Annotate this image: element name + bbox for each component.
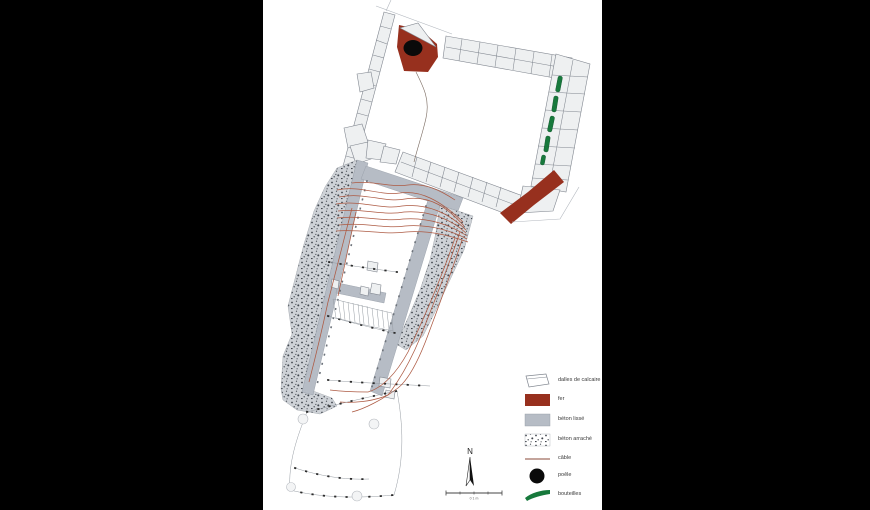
legend-item-label: poêle (558, 473, 571, 479)
survey-faint-line (386, 0, 391, 11)
legend-item-cable: câble (524, 455, 571, 463)
smoothed-concrete-swatch-icon (524, 413, 551, 427)
room-slabs (331, 261, 395, 399)
bottle-swatch-icon (524, 488, 551, 502)
trench-inner-dots (295, 468, 369, 479)
middle-concrete-structure (281, 160, 473, 414)
legend-item-label: dalles de calcaire (558, 378, 601, 384)
legend-item-beton-arrache: béton arraché (524, 433, 592, 447)
page: dalles de calcaire fer béton lissé (0, 0, 870, 510)
cable-upper (414, 72, 427, 162)
trench-stone (287, 483, 296, 492)
scale-bar: 0 1 m (445, 487, 503, 506)
scale-bar-icon: 0 1 m (445, 487, 503, 501)
legend-item-label: béton arraché (558, 437, 592, 443)
torn-concrete-swatch-icon (524, 433, 551, 447)
legend-item-bouteilles: bouteilles (524, 488, 581, 502)
legend-item-dalles-de-calcaire: dalles de calcaire (524, 372, 601, 389)
trench-stone (352, 491, 362, 501)
trench-inner-line (295, 468, 369, 479)
plan-panel: dalles de calcaire fer béton lissé (263, 0, 602, 510)
stove-swatch-icon (524, 467, 551, 485)
cable-swatch-icon (524, 455, 551, 463)
right-black-bar (602, 0, 870, 510)
stove-poele (404, 40, 423, 56)
trench-stone (298, 414, 308, 424)
collapse-fan (333, 299, 393, 331)
iron-swatch-icon (524, 393, 551, 407)
wall-left-limestone (342, 12, 400, 174)
trench-stone (369, 419, 379, 429)
legend-item-beton-lisse: béton lissé (524, 413, 584, 427)
legend: dalles de calcaire fer béton lissé (524, 0, 602, 510)
scale-bar-label: 0 1 m (470, 497, 479, 501)
legend-item-label: câble (558, 456, 571, 462)
legend-item-poele: poêle (524, 467, 571, 485)
trench-right-edge (394, 391, 402, 495)
legend-item-fer: fer (524, 393, 564, 407)
left-black-bar (0, 0, 263, 510)
trench-bottom-edge (290, 490, 394, 497)
limestone-swatch-icon (524, 372, 551, 389)
north-label: N (461, 448, 479, 456)
legend-item-label: béton lissé (558, 417, 584, 423)
legend-item-label: fer (558, 397, 564, 403)
legend-item-label: bouteilles (558, 492, 581, 498)
north-needle-icon (461, 456, 479, 489)
